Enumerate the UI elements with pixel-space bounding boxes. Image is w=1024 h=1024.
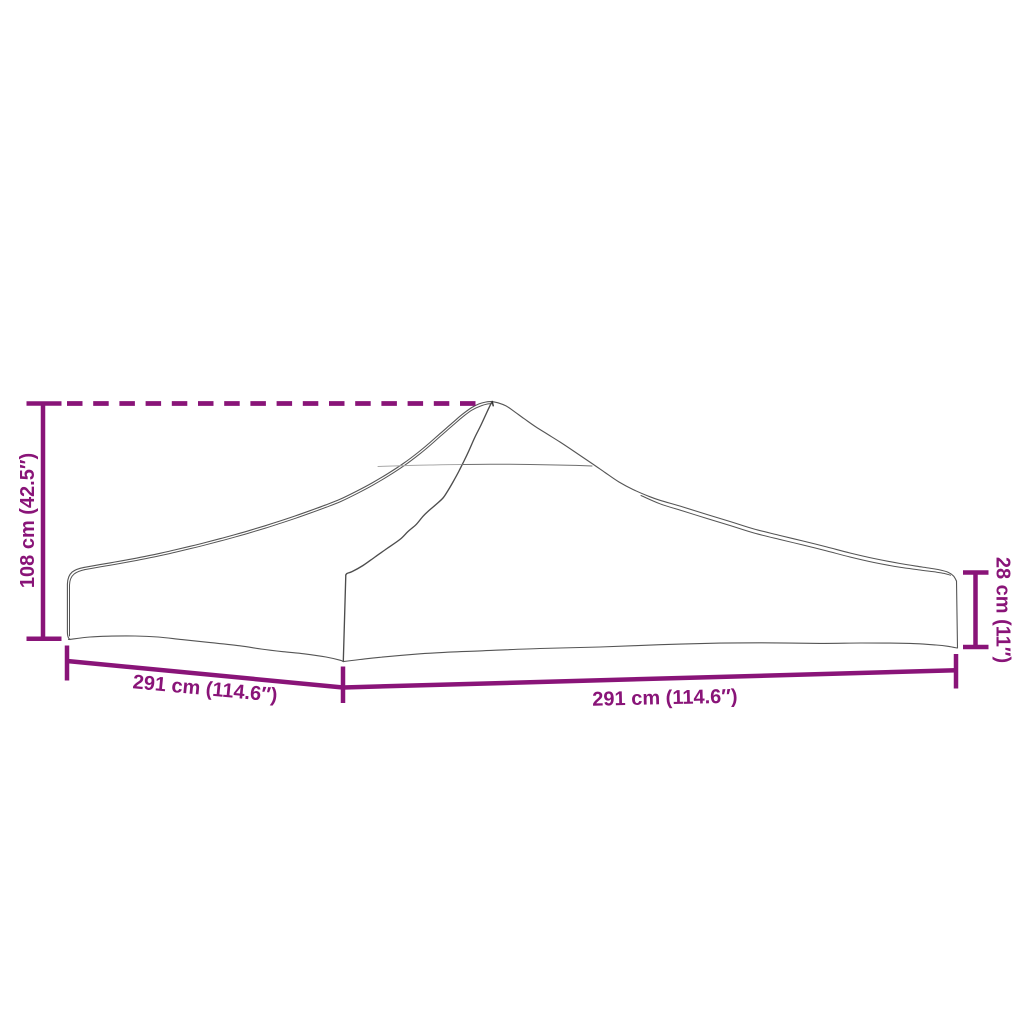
svg-text:108 cm (42.5″): 108 cm (42.5″) — [17, 453, 39, 588]
svg-text:291 cm (114.6″): 291 cm (114.6″) — [592, 686, 738, 711]
svg-text:291 cm (114.6″): 291 cm (114.6″) — [132, 671, 279, 707]
svg-text:28 cm (11″): 28 cm (11″) — [991, 557, 1013, 663]
